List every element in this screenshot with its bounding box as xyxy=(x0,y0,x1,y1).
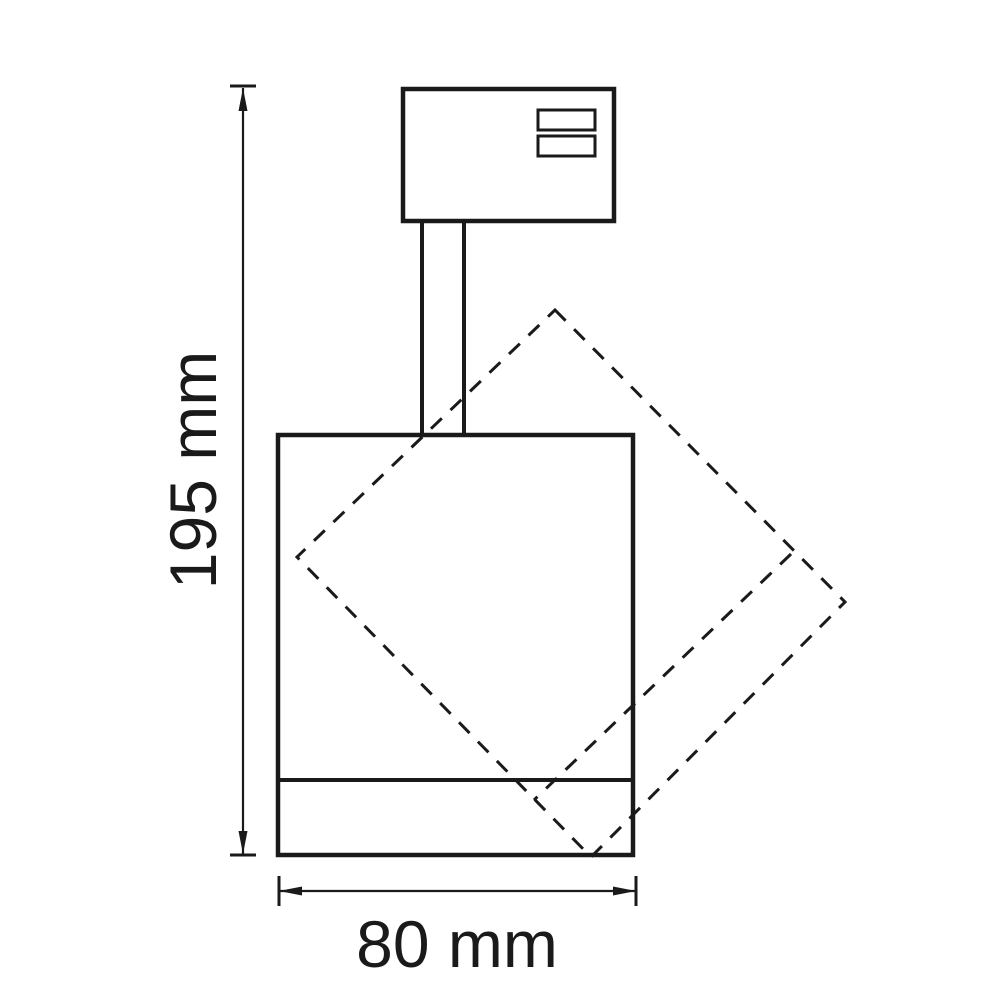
width-dimension-label: 80 mm xyxy=(356,907,558,981)
adapter-terminal-slot-bottom xyxy=(538,136,595,156)
height-dimension-arrow-down-icon xyxy=(239,831,248,854)
spotlight-drawing: 195 mm 80 mm xyxy=(0,0,1000,1000)
dimension-drawing-canvas: 195 mm 80 mm xyxy=(0,0,1000,1000)
height-dimension-arrow-up-icon xyxy=(239,88,248,111)
width-dimension-arrow-right-icon xyxy=(613,887,636,896)
lamp-body xyxy=(278,435,633,855)
width-dimension-arrow-left-icon xyxy=(279,887,302,896)
adapter-terminal-slot-top xyxy=(538,110,595,130)
height-dimension-label: 195 mm xyxy=(156,351,230,589)
